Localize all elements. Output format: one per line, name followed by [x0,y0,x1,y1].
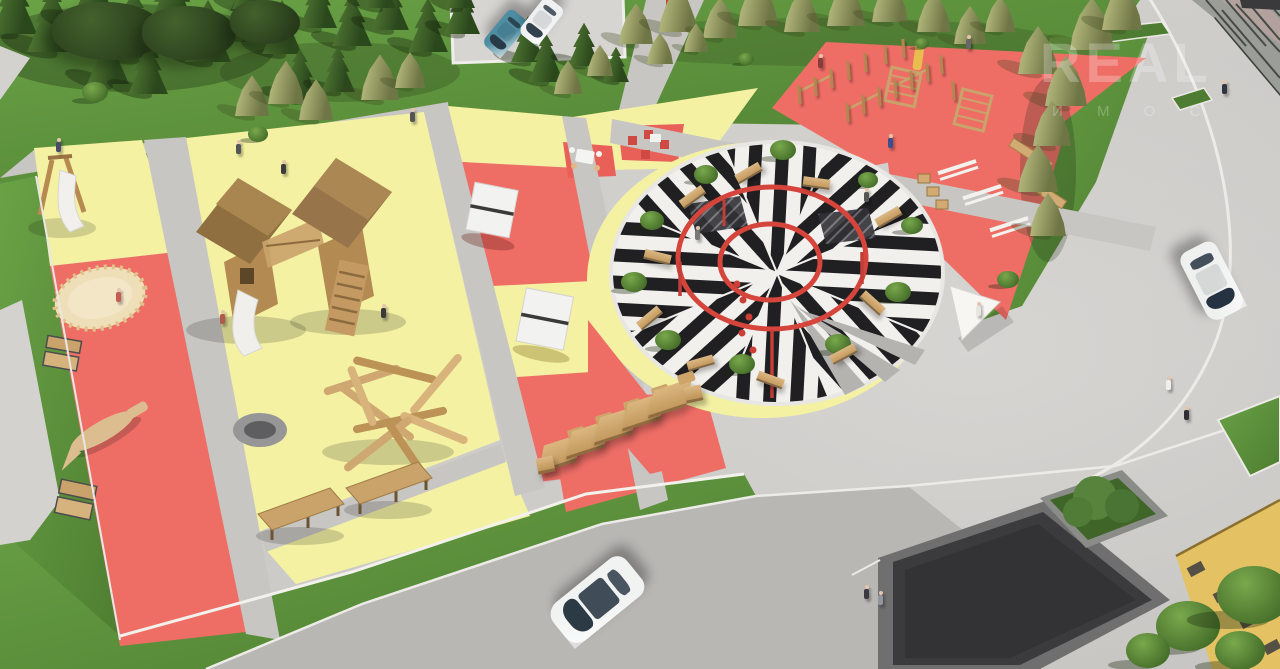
canopy [1030,193,1066,236]
plaza-tree [655,330,681,350]
olive-tree [872,0,908,22]
plaza-bench [636,305,663,330]
workout-post [939,55,943,74]
workout-post [845,103,849,122]
plaza-bench [734,162,762,184]
wooden-bench-block [536,455,556,474]
birch-clump [230,0,300,44]
olive-tree [1102,0,1142,30]
car [545,551,650,649]
person [1165,376,1172,390]
scene-objects [0,0,1280,669]
workout-post [863,53,867,72]
person [1183,406,1190,420]
canopy [248,126,268,142]
plaza-tree [621,272,647,292]
lounger-back [677,371,696,386]
person [235,140,242,154]
bush [738,53,754,65]
olive-tree [647,33,673,64]
wooden-bench-block [684,384,704,403]
person [380,304,387,318]
canopy [917,0,951,32]
olive-tree [395,52,425,88]
canopy [729,354,755,374]
person [280,160,287,174]
canopy [445,0,475,8]
plaza-tree [901,217,923,234]
canopy [885,282,911,302]
workout-post [951,81,955,100]
workout-post [813,77,817,96]
person-body [695,230,700,240]
canopy [655,330,681,350]
olive-tree [917,0,951,32]
conifer-tree [364,0,396,8]
plaza-tree [640,211,664,230]
canopy [647,33,673,64]
birch-clump [142,6,236,60]
person-body [864,192,869,202]
plaza-tree [729,354,755,374]
bush [1126,633,1170,667]
person [55,138,62,152]
olive-tree [299,79,333,120]
workout-post [829,69,833,88]
person [219,310,226,324]
plaza-bench [874,206,902,228]
person-body [236,144,241,154]
person-body [1166,380,1171,390]
workout-post [797,85,801,104]
workout-post [893,79,897,98]
workout-post [909,71,913,90]
canopy [587,45,613,76]
person-body [878,595,883,605]
plaza-tree [858,172,878,188]
canopy [364,0,396,8]
plaza-tree [770,140,796,160]
bush [997,271,1019,288]
canopy [1126,633,1170,667]
workout-post [925,63,929,82]
workout-post [846,61,850,80]
olive-tree [1030,193,1066,236]
person [863,585,870,599]
person-body [281,164,286,174]
workout-post [883,45,887,64]
workout-post [861,95,865,114]
person-body [56,142,61,152]
bush [1217,566,1280,624]
person-body [220,314,225,324]
canopy [915,38,929,49]
person-body [976,306,981,316]
canopy [1045,56,1087,106]
canopy [82,82,108,102]
person-body [1222,84,1227,94]
plaza-bench [643,249,672,265]
olive-tree [554,60,582,94]
person [409,108,416,122]
olive-tree [684,23,708,52]
canopy [1215,631,1265,669]
canopy [640,211,664,230]
canopy [872,0,908,22]
bush [248,126,268,142]
person [1221,80,1228,94]
canopy [694,165,718,184]
olive-tree [1018,144,1058,192]
person [817,54,824,68]
plaza-tree [885,282,911,302]
person [975,302,982,316]
canopy [1033,100,1071,146]
car [1177,238,1247,324]
olive-tree [1033,100,1071,146]
person-body [888,138,893,148]
olive-tree [1045,56,1087,106]
canopy [738,53,754,65]
bush [1215,631,1265,669]
person [965,35,972,49]
plaza-bench [756,371,785,390]
canopy [901,217,923,234]
person-body [864,589,869,599]
canopy [299,79,333,120]
canopy [1018,144,1058,192]
canopy [1102,0,1142,30]
canopy [858,172,878,188]
canopy [621,272,647,292]
person [115,288,122,302]
canopy [395,52,425,88]
workout-post [901,39,905,58]
olive-tree [587,45,613,76]
canopy [770,140,796,160]
canopy [985,0,1015,32]
canopy [997,271,1019,288]
person-body [818,58,823,68]
bush [82,82,108,102]
person [877,591,884,605]
plaza-bench [686,354,715,371]
plaza-bench [802,176,830,190]
plaza-tree [694,165,718,184]
plaza-bench [679,185,707,209]
person [887,134,894,148]
canopy [684,23,708,52]
conifer-tree [445,0,475,8]
person-body [381,308,386,318]
olive-tree [985,0,1015,32]
person [863,188,870,202]
bush [915,38,929,49]
person-body [1184,410,1189,420]
canopy [554,60,582,94]
person-body [966,39,971,49]
park-render-scene: REAL И М О С [0,0,1280,669]
workout-post [877,87,881,106]
person [694,226,701,240]
person-body [116,292,121,302]
person-body [410,112,415,122]
